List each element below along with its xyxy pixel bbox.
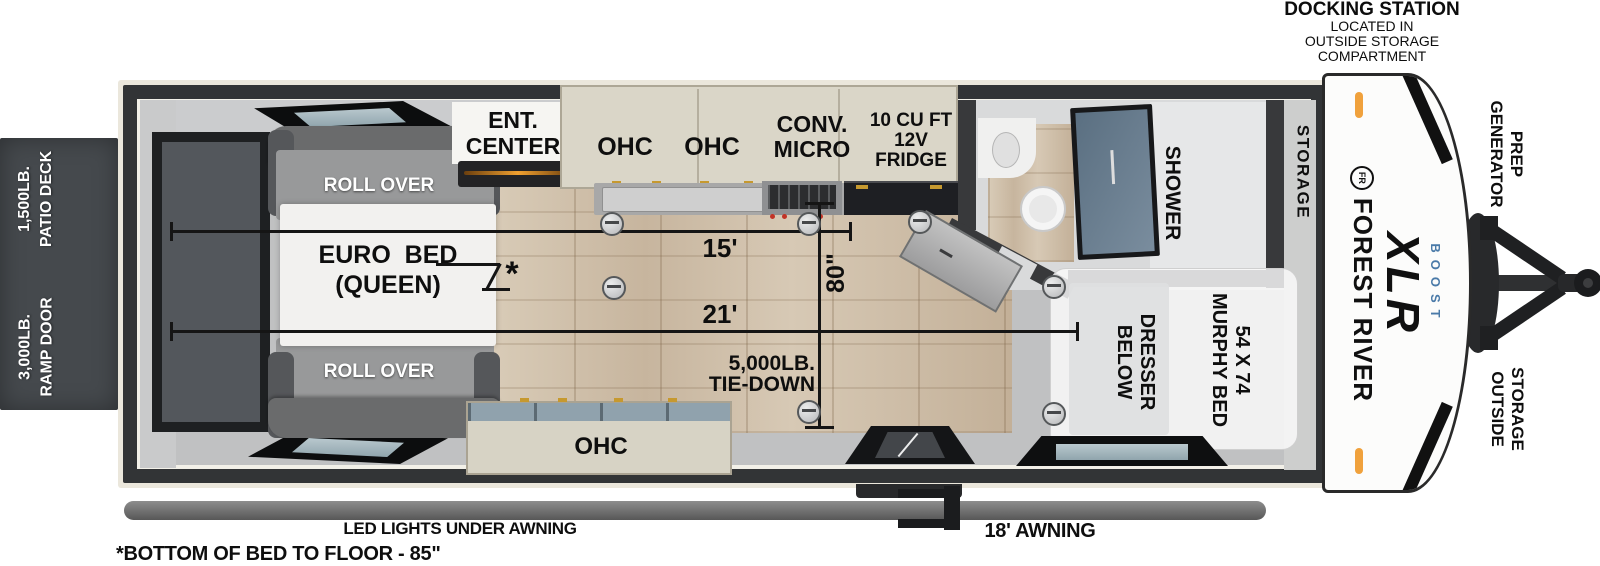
brand-make-row: FR FOREST RIVER — [1347, 166, 1378, 402]
brand-trim: BOOST — [1428, 243, 1443, 324]
dim-15ft-label: 15' — [690, 234, 750, 263]
fridge-handle — [930, 185, 942, 189]
rear-skylight-top-glass — [294, 108, 406, 127]
toilet-seat — [1029, 195, 1057, 223]
tie-down-anchor-icon — [1042, 275, 1066, 299]
dim-80in-tick-top — [805, 202, 834, 205]
ent-center-line2: CENTER — [466, 133, 561, 159]
stove-knob — [782, 214, 787, 219]
floorplan-canvas: 1,500LB. PATIO DECK 3,000LB. RAMP DOOR R… — [0, 0, 1600, 566]
bottom-ohc-hinge — [520, 398, 529, 402]
dim-80in-line — [818, 202, 821, 429]
coupler-ball-center — [1583, 278, 1593, 288]
vanity-faucet — [939, 249, 953, 259]
tie-down-anchor-icon — [797, 400, 821, 424]
tie-down-anchor-icon — [908, 210, 932, 234]
dim-21ft-tick-left — [170, 322, 173, 341]
shower-label: SHOWER — [1160, 138, 1184, 248]
fridge-line3: FRIDGE — [875, 150, 947, 171]
fireplace-glow — [464, 171, 572, 175]
fridge-handle — [856, 185, 868, 189]
awning-length-label: 18' AWNING — [935, 520, 1145, 542]
rear-skylight-bottom-glass — [292, 438, 404, 457]
dim-21ft-line — [170, 330, 1079, 333]
tie-down-line1: 5,000LB. — [729, 352, 815, 375]
toilet — [1020, 186, 1066, 232]
dresser-label: DRESSER BELOW — [1112, 287, 1158, 437]
shower-stall — [1070, 104, 1160, 260]
outside-storage-line1: OUTSIDE — [1488, 371, 1507, 447]
storage-label: STORAGE — [1290, 90, 1312, 255]
conv-micro-line1: CONV. — [777, 111, 848, 137]
kitchen-sink — [602, 187, 764, 212]
conv-micro-line2: MICRO — [774, 136, 851, 162]
fridge-label: 10 CU FT 12V FRIDGE — [864, 111, 958, 171]
fridge-line2: 12V — [894, 130, 928, 151]
docking-station-line1: LOCATED IN — [1277, 19, 1467, 34]
bath-sink-counter — [978, 118, 1036, 178]
dim-21ft-tick-right — [1076, 322, 1079, 341]
dim-15ft-line — [170, 230, 852, 233]
docking-station-line3: COMPARTMENT — [1277, 49, 1467, 64]
docking-station-line2: OUTSIDE STORAGE — [1277, 34, 1467, 49]
ramp-door-name: RAMP DOOR — [39, 297, 56, 396]
tie-down-anchor-icon — [1042, 402, 1066, 426]
awning-tube — [124, 501, 1266, 520]
murphy-bed-overlay — [1050, 268, 1298, 450]
ramp-door-weight: 3,000LB. — [17, 314, 34, 380]
bottom-ohc-hinge — [668, 398, 677, 402]
generator-prep-label: PREP GENERATOR — [1486, 94, 1526, 214]
dim-21ft-label: 21' — [690, 300, 750, 329]
ohc-left-label: OHC — [585, 134, 665, 162]
bottom-ohc-top-strip — [468, 403, 730, 421]
stove-grate — [768, 185, 836, 209]
docking-station-title: DOCKING STATION — [1277, 0, 1467, 19]
patio-deck-weight: 1,500LB. — [16, 166, 33, 232]
tie-down-anchor-icon — [602, 276, 626, 300]
ohc-bottom-label: OHC — [536, 434, 666, 460]
roll-over-rear-label: ROLL OVER — [309, 362, 449, 383]
bath-wall-left — [958, 100, 976, 230]
a-frame-end-bottom — [1480, 326, 1498, 350]
generator-prep-line1: GENERATOR — [1487, 100, 1506, 207]
docking-station-note: DOCKING STATION LOCATED IN OUTSIDE STORA… — [1277, 0, 1467, 64]
bottom-ohc-hinge — [558, 398, 567, 402]
patio-deck-label: 1,500LB. PATIO DECK — [14, 134, 60, 264]
footnote-label: *BOTTOM OF BED TO FLOOR - 85" — [116, 543, 536, 565]
brand-emblem: FR — [1351, 166, 1375, 190]
conv-micro-label: CONV. MICRO — [760, 112, 864, 162]
a-frame-lower — [1488, 288, 1562, 338]
bath-sink — [992, 132, 1020, 168]
dim-80in-tick-bottom — [805, 426, 834, 429]
ohc-right-label: OHC — [672, 134, 752, 162]
murphy-bed-line2: MURPHY BED — [1208, 293, 1230, 427]
generator-prep-line2: PREP — [1507, 131, 1526, 177]
ramp-opening-panel — [152, 132, 270, 432]
a-frame-upper — [1488, 228, 1562, 278]
brand-logo: BOOST XLR FR FOREST RIVER — [1330, 104, 1460, 464]
roll-over-front-label: ROLL OVER — [309, 176, 449, 197]
euro-bed-line2: (QUEEN) — [335, 271, 441, 299]
bed-note-leader-h — [436, 263, 500, 266]
dim-15ft-tick-left — [170, 222, 173, 241]
tie-down-anchor-icon — [600, 212, 624, 236]
a-frame-end-top — [1480, 216, 1498, 240]
murphy-bed-label: 54 X 74 MURPHY BED — [1207, 275, 1253, 445]
murphy-bed-line1: 54 X 74 — [1231, 326, 1253, 395]
bottom-ohc-hinge — [614, 398, 623, 402]
outside-storage-line2: STORAGE — [1508, 367, 1527, 451]
ent-center-label: ENT. CENTER — [452, 107, 574, 159]
entry-door-panel — [875, 432, 945, 458]
outside-storage-label: STORAGE OUTSIDE — [1487, 354, 1527, 464]
brand-model: XLR — [1380, 232, 1426, 336]
dim-80in-label: 80" — [823, 243, 849, 303]
dim-15ft-tick-right — [849, 222, 852, 241]
murphy-window — [1016, 436, 1228, 466]
tie-down-label: 5,000LB. TIE-DOWN — [650, 353, 815, 395]
ent-center-line1: ENT. — [488, 107, 538, 133]
front-cap: BOOST XLR FR FOREST RIVER — [1322, 73, 1472, 493]
murphy-window-glass — [1056, 444, 1188, 460]
bath-wall-right — [1266, 100, 1284, 288]
ramp-door-label: 3,000LB. RAMP DOOR — [15, 280, 61, 415]
dresser-line1: DRESSER — [1136, 314, 1158, 411]
dresser-line2: BELOW — [1113, 325, 1135, 399]
brand-make: FOREST RIVER — [1347, 198, 1378, 402]
led-lights-label: LED LIGHTS UNDER AWNING — [300, 520, 620, 539]
stove — [762, 181, 842, 215]
tie-down-anchor-icon — [797, 212, 821, 236]
refrigerator — [844, 181, 958, 215]
tie-down-line2: TIE-DOWN — [709, 373, 815, 396]
bed-note-asterisk: * — [498, 256, 526, 293]
fridge-line1: 10 CU FT — [870, 110, 952, 131]
patio-deck-name: PATIO DECK — [38, 151, 55, 247]
euro-bed-label: EURO BED (QUEEN) — [290, 240, 486, 300]
stove-knob — [770, 214, 775, 219]
